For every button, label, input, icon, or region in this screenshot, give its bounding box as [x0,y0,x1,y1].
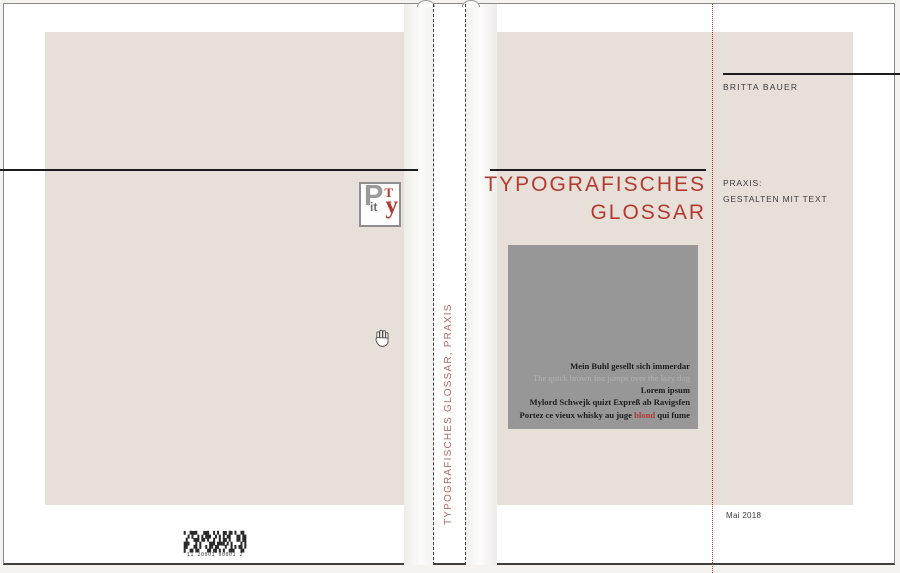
specimen-line-3: Lorem ipsum [520,384,690,396]
logo-letters-it: it [370,201,377,213]
cover-title-line1: TYPOGRAFISCHES [484,171,706,199]
barcode-pattern-row: ▛▗▞▙▘▝▟▚▛▖▞▗▙▘▜▞ [183,546,247,553]
publisher-logo: P T it y [359,182,401,227]
specimen-box: Mein Buhl gesellt sich immerdar The quic… [508,245,698,429]
series-line1: PRAXIS: [723,176,827,192]
logo-letter-y: y [386,193,399,218]
spine-fold-dashed-line-right [465,4,466,565]
specimen-lines: Mein Buhl gesellt sich immerdar The quic… [520,360,690,421]
back-cover-panel [45,32,406,505]
spine-fold-shade-left [404,4,434,565]
hand-tool-cursor-icon [374,328,390,353]
cover-spread-canvas: TYPOGRAFISCHES GLOSSAR, PRAXIS P T it y … [0,0,900,573]
spine-title: TYPOGRAFISCHES GLOSSAR, PRAXIS [443,315,457,525]
spine-fold-shade-right [466,4,497,565]
cover-title: TYPOGRAFISCHES GLOSSAR [484,171,706,227]
spine-fold-dashed-line-left [433,4,434,565]
publication-date: Mai 2018 [726,511,761,520]
red-dotted-guide-line [712,4,713,573]
specimen-line-4: Mylord Schwejk quizt Expreß ab Ravigsfen [520,396,690,408]
author-name: BRITTA BAUER [723,82,798,92]
specimen-line-5-post: qui fume [655,410,690,420]
cover-title-line2: GLOSSAR [484,199,706,227]
barcode-digits: 11 20001 00001 2 [183,552,247,558]
author-rule-line [723,73,900,75]
specimen-line-2: The quick brown fox jumps over the lazy … [520,372,690,384]
specimen-line-5: Portez ce vieux whisky au juge blond qui… [520,409,690,421]
specimen-line-1: Mein Buhl gesellt sich immerdar [520,360,690,372]
specimen-line-5-pre: Portez ce vieux whisky au juge [520,410,635,420]
barcode: ▘▞▛▚▗▜▙▝▞▖▛▟▘▚▞▙ ▟▖▝▛▞▘▚▟▗▙▛▞▖▝▚▜ ▛▗▞▙▘▝… [183,532,247,558]
series-title: PRAXIS: GESTALTEN MIT TEXT [723,176,827,207]
back-cover-rule-line [0,169,418,171]
specimen-line-5-accent: blond [634,410,655,420]
series-line2: GESTALTEN MIT TEXT [723,192,827,208]
